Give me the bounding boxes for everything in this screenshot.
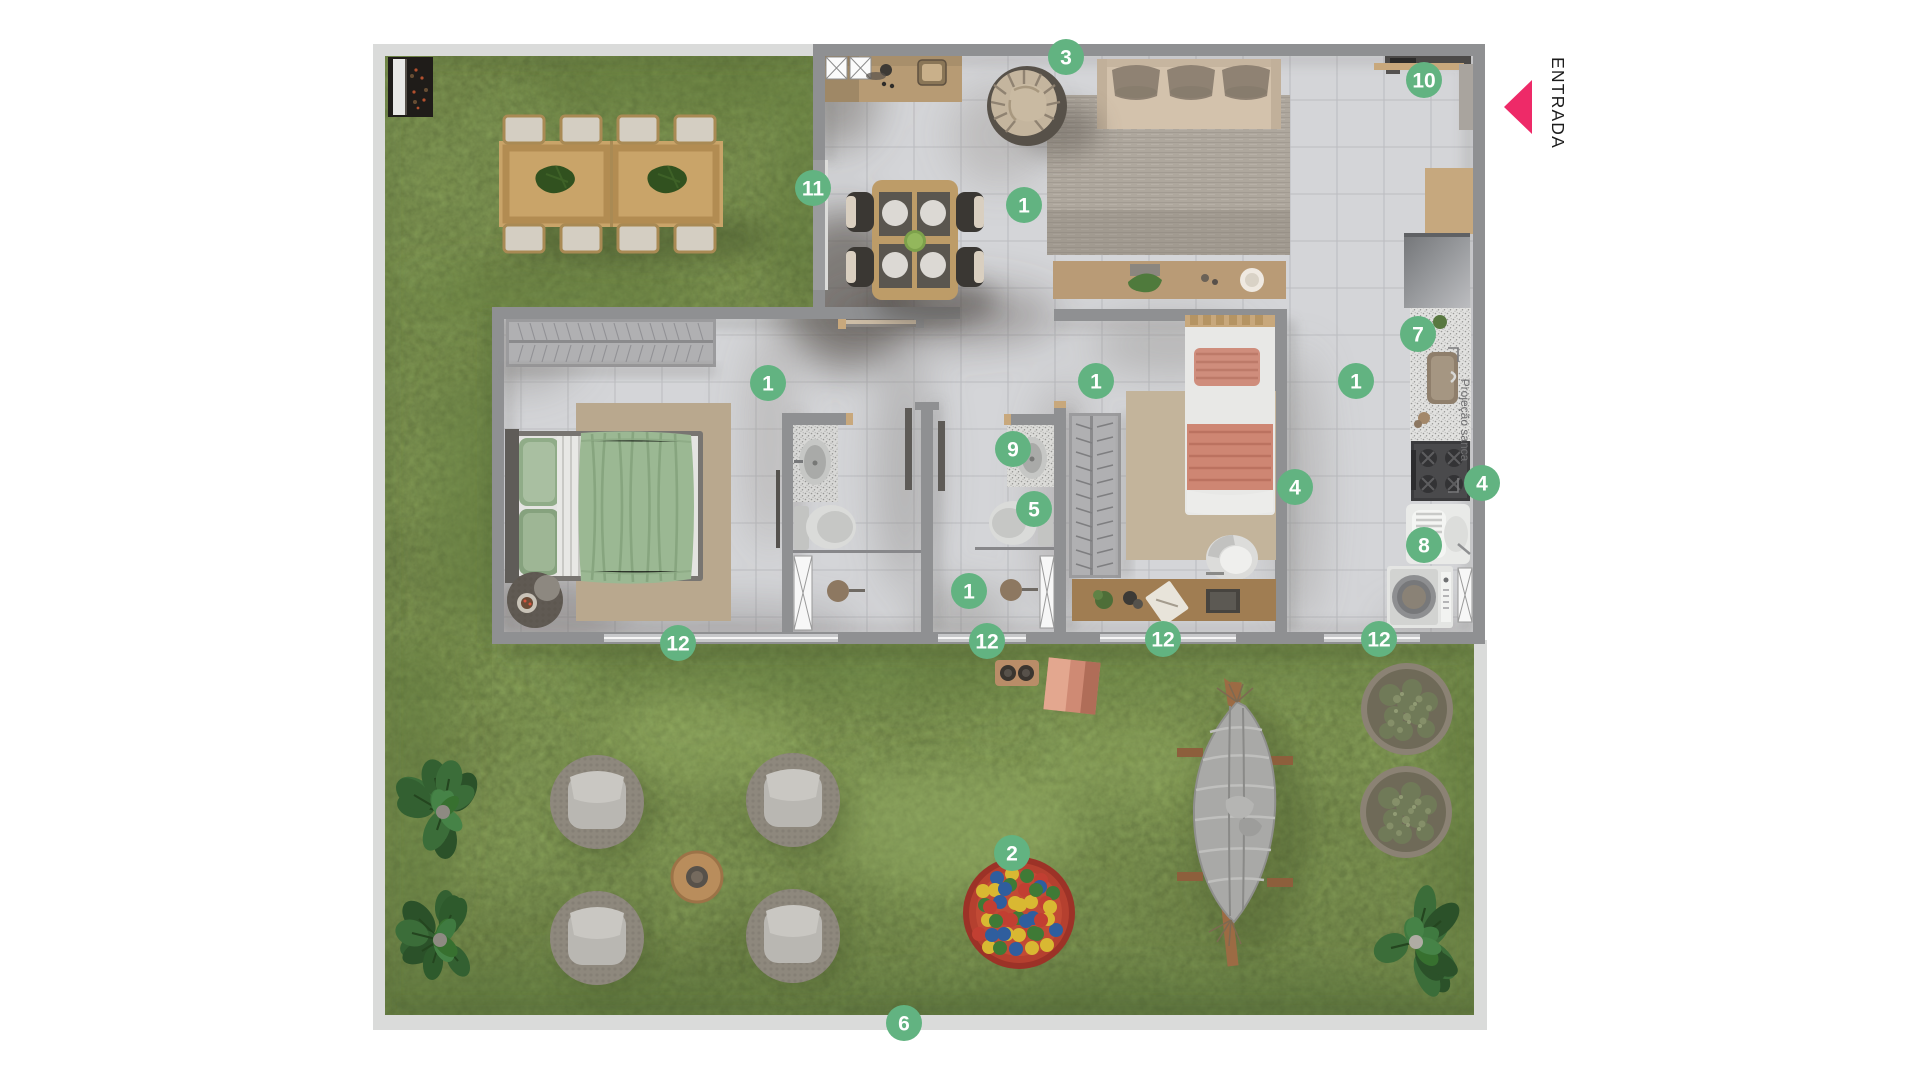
svg-text:3: 3 — [1060, 47, 1072, 70]
svg-text:8: 8 — [1418, 535, 1430, 558]
svg-text:1: 1 — [1350, 371, 1362, 394]
svg-text:11: 11 — [802, 178, 825, 201]
svg-text:12: 12 — [1367, 629, 1390, 652]
svg-text:4: 4 — [1289, 477, 1301, 500]
svg-text:1: 1 — [1090, 371, 1102, 394]
svg-text:12: 12 — [666, 633, 689, 656]
svg-text:Projeção sanca: Projeção sanca — [1458, 379, 1472, 462]
svg-text:6: 6 — [898, 1013, 910, 1036]
svg-text:7: 7 — [1412, 324, 1424, 347]
svg-text:12: 12 — [1151, 629, 1174, 652]
svg-text:9: 9 — [1007, 439, 1019, 462]
svg-text:1: 1 — [1018, 195, 1030, 218]
svg-text:2: 2 — [1006, 843, 1018, 866]
svg-text:4: 4 — [1476, 473, 1488, 496]
svg-text:10: 10 — [1412, 70, 1435, 93]
svg-text:ENTRADA: ENTRADA — [1548, 57, 1568, 149]
svg-text:12: 12 — [975, 631, 998, 654]
svg-text:1: 1 — [762, 373, 774, 396]
svg-text:5: 5 — [1028, 499, 1040, 522]
svg-text:1: 1 — [963, 581, 975, 604]
